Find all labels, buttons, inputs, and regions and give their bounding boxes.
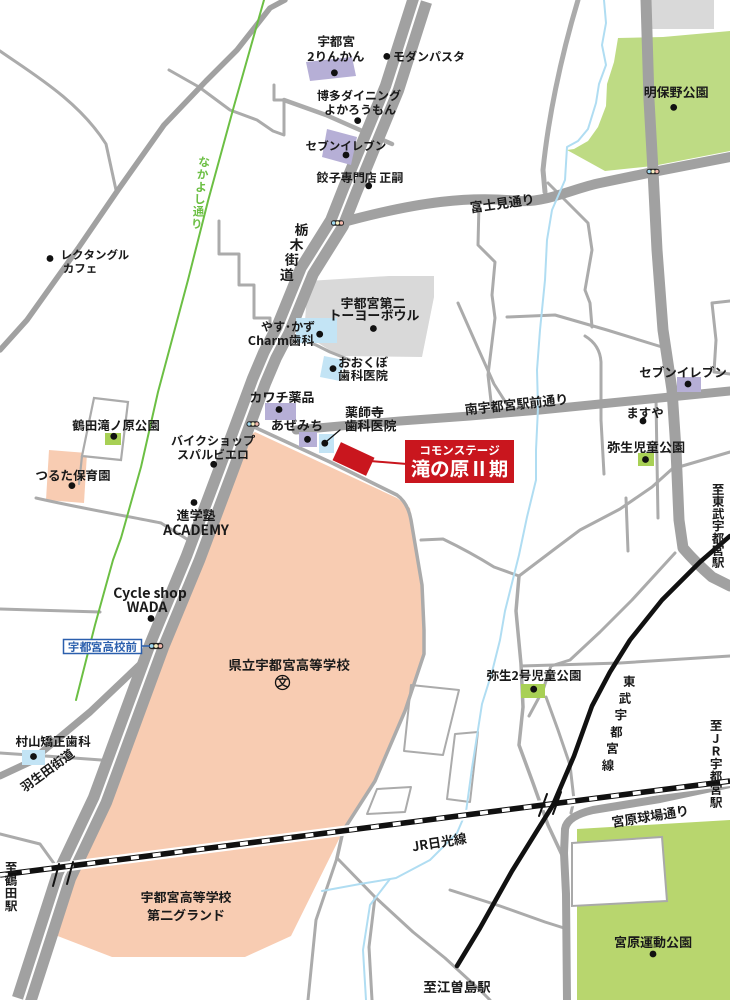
svg-text:セブンイレブン: セブンイレブン <box>306 138 387 154</box>
svg-text:線: 線 <box>601 755 615 774</box>
svg-text:歯科医院: 歯科医院 <box>338 365 389 384</box>
svg-text:り: り <box>191 216 203 232</box>
svg-text:あぜみち: あぜみち <box>271 415 323 434</box>
svg-text:弥生2号児童公園: 弥生2号児童公園 <box>487 665 582 684</box>
svg-text:第二グランド: 第二グランド <box>147 905 225 924</box>
svg-text:つるた保育園: つるた保育園 <box>35 465 110 484</box>
svg-text:駅: 駅 <box>712 552 725 571</box>
svg-text:カワチ薬品: カワチ薬品 <box>249 387 314 406</box>
svg-text:カフェ: カフェ <box>63 261 98 277</box>
svg-text:セブンイレブン: セブンイレブン <box>639 362 727 381</box>
svg-text:駅: 駅 <box>710 792 723 811</box>
svg-text:至江曽島駅: 至江曽島駅 <box>423 976 491 996</box>
svg-text:文: 文 <box>277 675 289 691</box>
svg-text:歯科医院: 歯科医院 <box>344 416 396 435</box>
svg-text:ACADEMY: ACADEMY <box>162 520 230 540</box>
svg-text:スパルビエロ: スパルビエロ <box>177 446 249 463</box>
svg-text:WADA: WADA <box>127 597 169 617</box>
svg-text:よかろうもん: よかろうもん <box>324 101 396 118</box>
svg-text:トーヨーボウル: トーヨーボウル <box>328 305 420 324</box>
svg-text:道: 道 <box>280 265 294 285</box>
svg-text:ますや: ますや <box>626 403 664 422</box>
svg-text:モダンパスタ: モダンパスタ <box>393 48 465 65</box>
svg-text:Charm歯科: Charm歯科 <box>248 330 315 349</box>
svg-text:明保野公園: 明保野公園 <box>643 82 708 101</box>
svg-text:県立宇都宮高等学校: 県立宇都宮高等学校 <box>228 654 350 674</box>
svg-text:弥生児童公園: 弥生児童公園 <box>607 437 685 456</box>
svg-text:宇都宮高校前: 宇都宮高校前 <box>68 639 137 655</box>
svg-text:宮原運動公園: 宮原運動公園 <box>614 932 692 951</box>
svg-text:2りんかん: 2りんかん <box>307 46 364 65</box>
svg-text:鶴田滝ノ原公園: 鶴田滝ノ原公園 <box>72 415 160 434</box>
svg-text:駅: 駅 <box>5 895 18 914</box>
svg-text:餃子専門店 正嗣: 餃子専門店 正嗣 <box>316 169 404 186</box>
svg-text:村山矯正歯科: 村山矯正歯科 <box>15 731 91 750</box>
svg-text:滝の原Ⅱ期: 滝の原Ⅱ期 <box>411 453 509 482</box>
svg-text:宇都宮高等学校: 宇都宮高等学校 <box>140 887 231 906</box>
